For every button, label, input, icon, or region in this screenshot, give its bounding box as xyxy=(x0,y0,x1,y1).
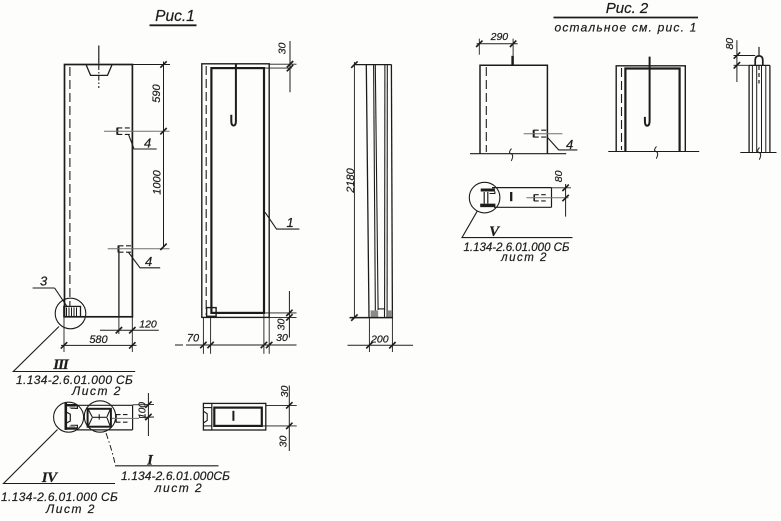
svg-text:4: 4 xyxy=(566,137,573,152)
svg-text:1000: 1000 xyxy=(152,169,164,194)
svg-text:Рис. 2: Рис. 2 xyxy=(606,0,649,17)
svg-text:70: 70 xyxy=(187,333,200,345)
svg-text:580: 580 xyxy=(89,334,108,346)
svg-text:30: 30 xyxy=(276,332,288,344)
svg-text:120: 120 xyxy=(139,319,157,331)
svg-text:Лист 2: Лист 2 xyxy=(45,502,96,516)
svg-text:4: 4 xyxy=(145,254,152,269)
svg-text:1: 1 xyxy=(287,215,294,230)
svg-text:80: 80 xyxy=(724,38,736,50)
svg-text:лист 2: лист 2 xyxy=(154,481,203,495)
svg-text:IV: IV xyxy=(41,470,59,486)
svg-text:290: 290 xyxy=(490,31,509,43)
svg-text:80: 80 xyxy=(553,170,565,182)
svg-text:30: 30 xyxy=(277,43,289,55)
svg-text:590: 590 xyxy=(151,83,163,102)
svg-text:2180: 2180 xyxy=(345,167,357,193)
svg-text:Лист 2: Лист 2 xyxy=(71,384,122,398)
svg-text:30: 30 xyxy=(276,319,288,331)
svg-text:остальное см. рис. 1: остальное см. рис. 1 xyxy=(554,21,697,35)
svg-text:I: I xyxy=(146,453,154,469)
svg-text:3: 3 xyxy=(40,274,48,289)
svg-text:30: 30 xyxy=(279,386,291,398)
svg-text:лист 2: лист 2 xyxy=(500,252,548,264)
svg-text:100: 100 xyxy=(137,402,148,419)
svg-text:III: III xyxy=(52,357,70,373)
svg-text:4: 4 xyxy=(144,136,151,151)
svg-text:200: 200 xyxy=(370,334,389,346)
svg-text:Рис.1: Рис.1 xyxy=(155,8,195,25)
svg-text:30: 30 xyxy=(278,436,290,448)
